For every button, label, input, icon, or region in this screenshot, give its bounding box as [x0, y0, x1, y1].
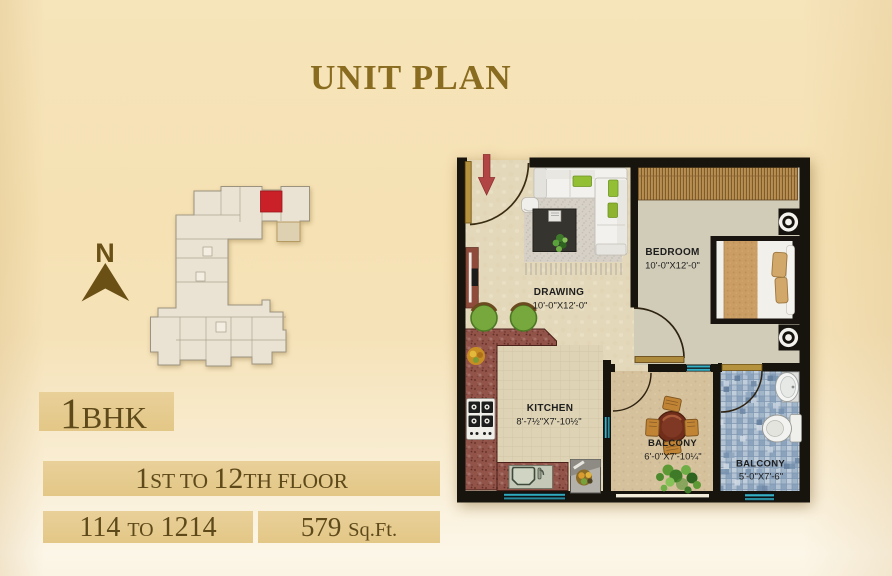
- svg-text:KITCHEN: KITCHEN: [527, 403, 574, 414]
- svg-text:BALCONY: BALCONY: [736, 459, 785, 470]
- svg-text:BEDROOM: BEDROOM: [645, 247, 699, 258]
- svg-text:DRAWING: DRAWING: [534, 287, 584, 298]
- svg-text:8'-7½"X7'-10½": 8'-7½"X7'-10½": [516, 417, 581, 428]
- svg-text:5'-0"X7'-6": 5'-0"X7'-6": [739, 472, 783, 483]
- svg-text:BALCONY: BALCONY: [648, 438, 697, 449]
- svg-text:10'-0"X12'-0": 10'-0"X12'-0": [645, 261, 700, 272]
- svg-text:10'-0"X12'-0": 10'-0"X12'-0": [533, 301, 588, 312]
- svg-text:6'-0"X7'-10¼": 6'-0"X7'-10¼": [644, 452, 701, 463]
